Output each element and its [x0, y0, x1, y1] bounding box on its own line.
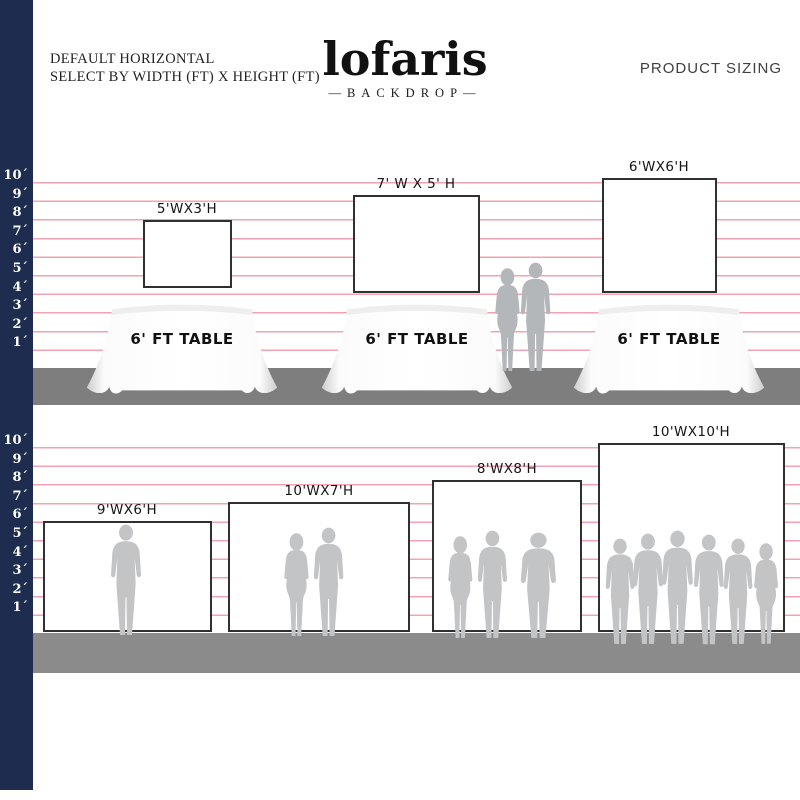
ruler-label: 10´ [0, 169, 28, 183]
ruler-label: 2´ [0, 583, 28, 597]
subtitle-line2: SELECT BY WIDTH (FT) X HEIGHT (FT) [50, 68, 320, 86]
table-graphic: 6' FT TABLE [319, 298, 515, 396]
table-graphic: 6' FT TABLE [571, 298, 767, 396]
ruler-label: 3´ [0, 299, 28, 313]
ruler-label: 8´ [0, 206, 28, 220]
table-label: 6' FT TABLE [571, 330, 767, 348]
ruler-label: 6´ [0, 243, 28, 257]
brand-logo: lofaris —BACKDROP— [305, 34, 505, 101]
backdrop-size-label: 7' W X 5' H [336, 176, 496, 192]
ruler-label: 10´ [0, 434, 28, 448]
silhouette-three-people [443, 518, 569, 640]
silhouette-couple [490, 254, 566, 373]
backdrop-size-label: 6'WX6'H [579, 159, 739, 175]
backdrop-rect-5x3 [143, 220, 232, 288]
brand-logo-tagline: —BACKDROP— [305, 86, 505, 101]
silhouette-two-people [277, 518, 357, 638]
backdrop-size-label: 9'WX6'H [47, 502, 207, 518]
ruler-label: 7´ [0, 225, 28, 239]
silhouette-one-person [106, 524, 146, 637]
backdrop-size-label: 8'WX8'H [427, 461, 587, 477]
table-graphic: 6' FT TABLE [84, 298, 280, 396]
ruler-label: 2´ [0, 318, 28, 332]
ruler-label: 5´ [0, 262, 28, 276]
ruler-label: 1´ [0, 336, 28, 350]
ruler-label: 9´ [0, 188, 28, 202]
ruler-label: 3´ [0, 564, 28, 578]
ruler-label: 4´ [0, 281, 28, 295]
subtitle-line1: DEFAULT HORIZONTAL [50, 50, 320, 68]
backdrop-size-label: 5'WX3'H [107, 201, 267, 217]
table-label: 6' FT TABLE [84, 330, 280, 348]
ruler-label: 5´ [0, 527, 28, 541]
backdrop-rect-7x5 [353, 195, 480, 293]
backdrop-size-label: 10'WX10'H [611, 424, 771, 440]
brand-logo-text: lofaris [305, 34, 505, 84]
ruler-label: 1´ [0, 601, 28, 615]
ruler-label: 8´ [0, 471, 28, 485]
ruler-label: 7´ [0, 490, 28, 504]
silhouette-group-of-six [601, 524, 783, 646]
table-label: 6' FT TABLE [319, 330, 515, 348]
backdrop-size-label: 10'WX7'H [239, 483, 399, 499]
header-subtitle: DEFAULT HORIZONTAL SELECT BY WIDTH (FT) … [50, 50, 320, 86]
page-title: PRODUCT SIZING [600, 60, 782, 77]
product-sizing-infographic: DEFAULT HORIZONTAL SELECT BY WIDTH (FT) … [0, 0, 800, 800]
backdrop-rect-6x6 [602, 178, 717, 293]
left-ruler-bar [0, 0, 33, 790]
ruler-label: 6´ [0, 508, 28, 522]
ruler-label: 9´ [0, 453, 28, 467]
ruler-label: 4´ [0, 546, 28, 560]
